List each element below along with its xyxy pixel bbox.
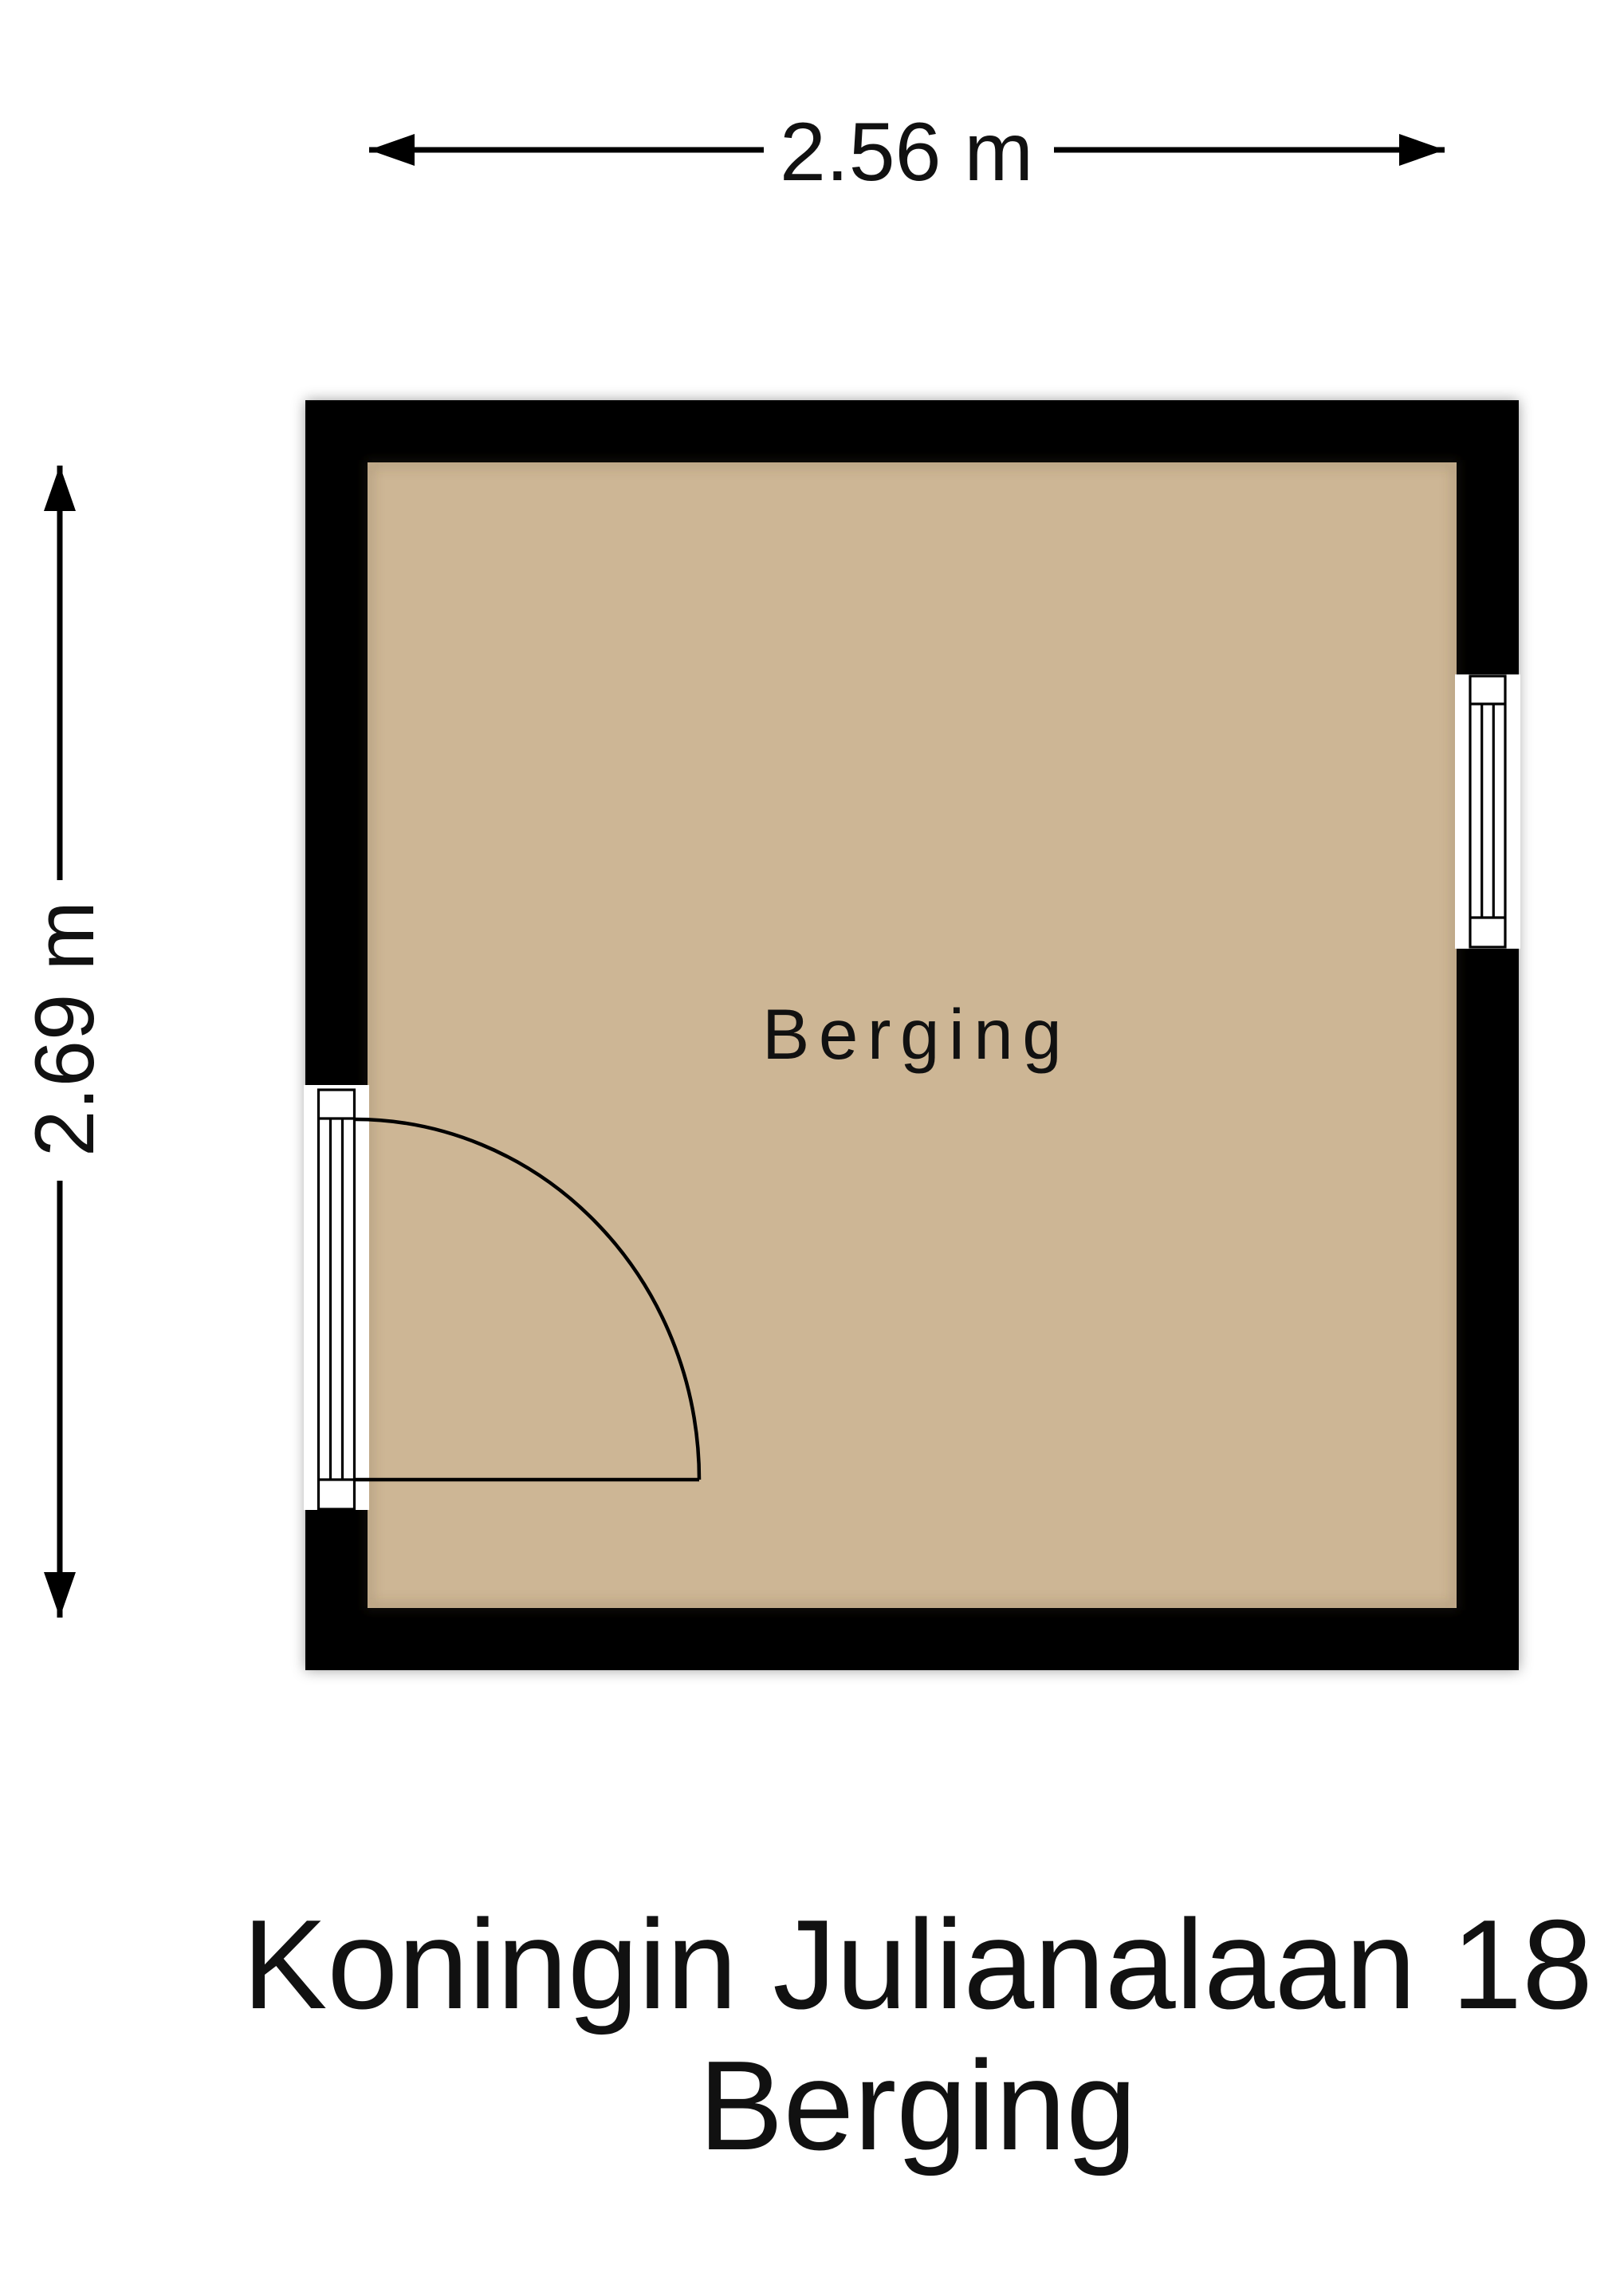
svg-text:Berging: Berging bbox=[762, 994, 1071, 1074]
svg-text:Koningin Julianalaan 18: Koningin Julianalaan 18 bbox=[242, 1893, 1593, 2035]
svg-text:2.69 m: 2.69 m bbox=[18, 901, 112, 1157]
svg-text:2.56 m: 2.56 m bbox=[780, 106, 1033, 199]
svg-text:Berging: Berging bbox=[698, 2035, 1137, 2176]
